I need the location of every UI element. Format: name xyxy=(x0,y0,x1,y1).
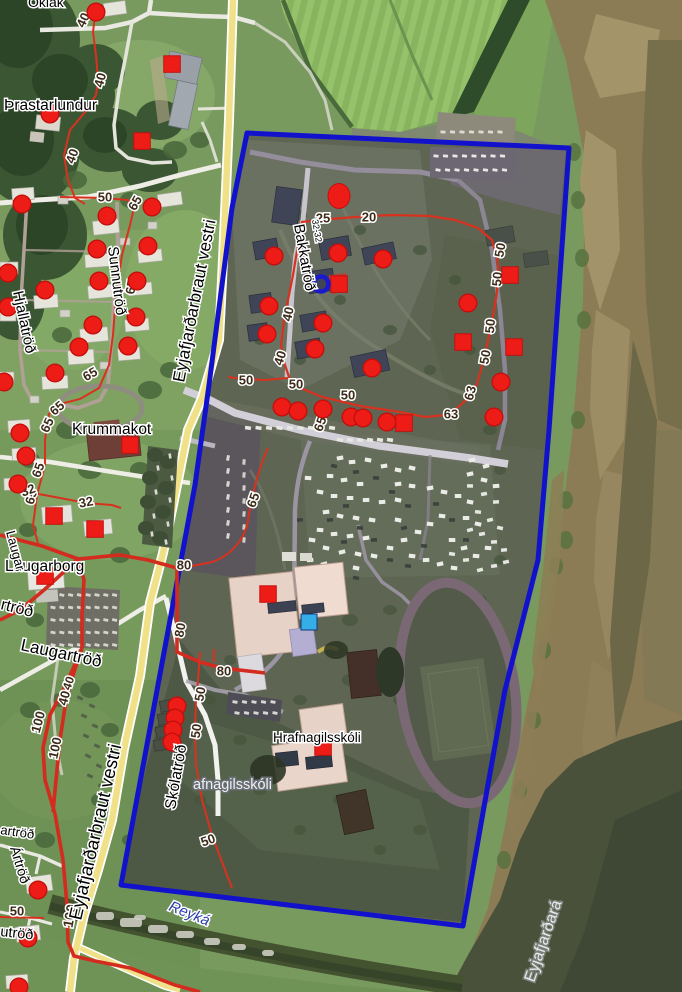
svg-text:32: 32 xyxy=(78,493,95,510)
svg-text:50: 50 xyxy=(188,723,205,739)
svg-text:50: 50 xyxy=(98,190,112,205)
svg-text:Krummakot: Krummakot xyxy=(72,421,152,438)
svg-text:80: 80 xyxy=(217,664,231,679)
svg-text:20: 20 xyxy=(362,210,376,225)
svg-text:Þrastarlundur: Þrastarlundur xyxy=(4,97,97,114)
svg-text:Öklak: Öklak xyxy=(28,0,65,10)
svg-text:50: 50 xyxy=(491,242,508,259)
svg-text:63: 63 xyxy=(444,407,458,422)
svg-text:Hrafnagilsskóli: Hrafnagilsskóli xyxy=(273,730,361,745)
svg-text:50: 50 xyxy=(482,318,498,334)
svg-text:50: 50 xyxy=(10,904,24,919)
svg-text:80: 80 xyxy=(171,622,188,639)
svg-text:afnagilsskóli: afnagilsskóli xyxy=(193,777,272,793)
svg-text:utröð: utröð xyxy=(0,924,34,943)
svg-text:50: 50 xyxy=(191,686,208,703)
svg-text:40: 40 xyxy=(279,305,297,322)
svg-text:50: 50 xyxy=(476,349,493,366)
svg-text:50: 50 xyxy=(289,377,303,392)
svg-text:50: 50 xyxy=(239,373,253,388)
svg-text:50: 50 xyxy=(341,388,355,403)
svg-text:80: 80 xyxy=(177,558,191,573)
